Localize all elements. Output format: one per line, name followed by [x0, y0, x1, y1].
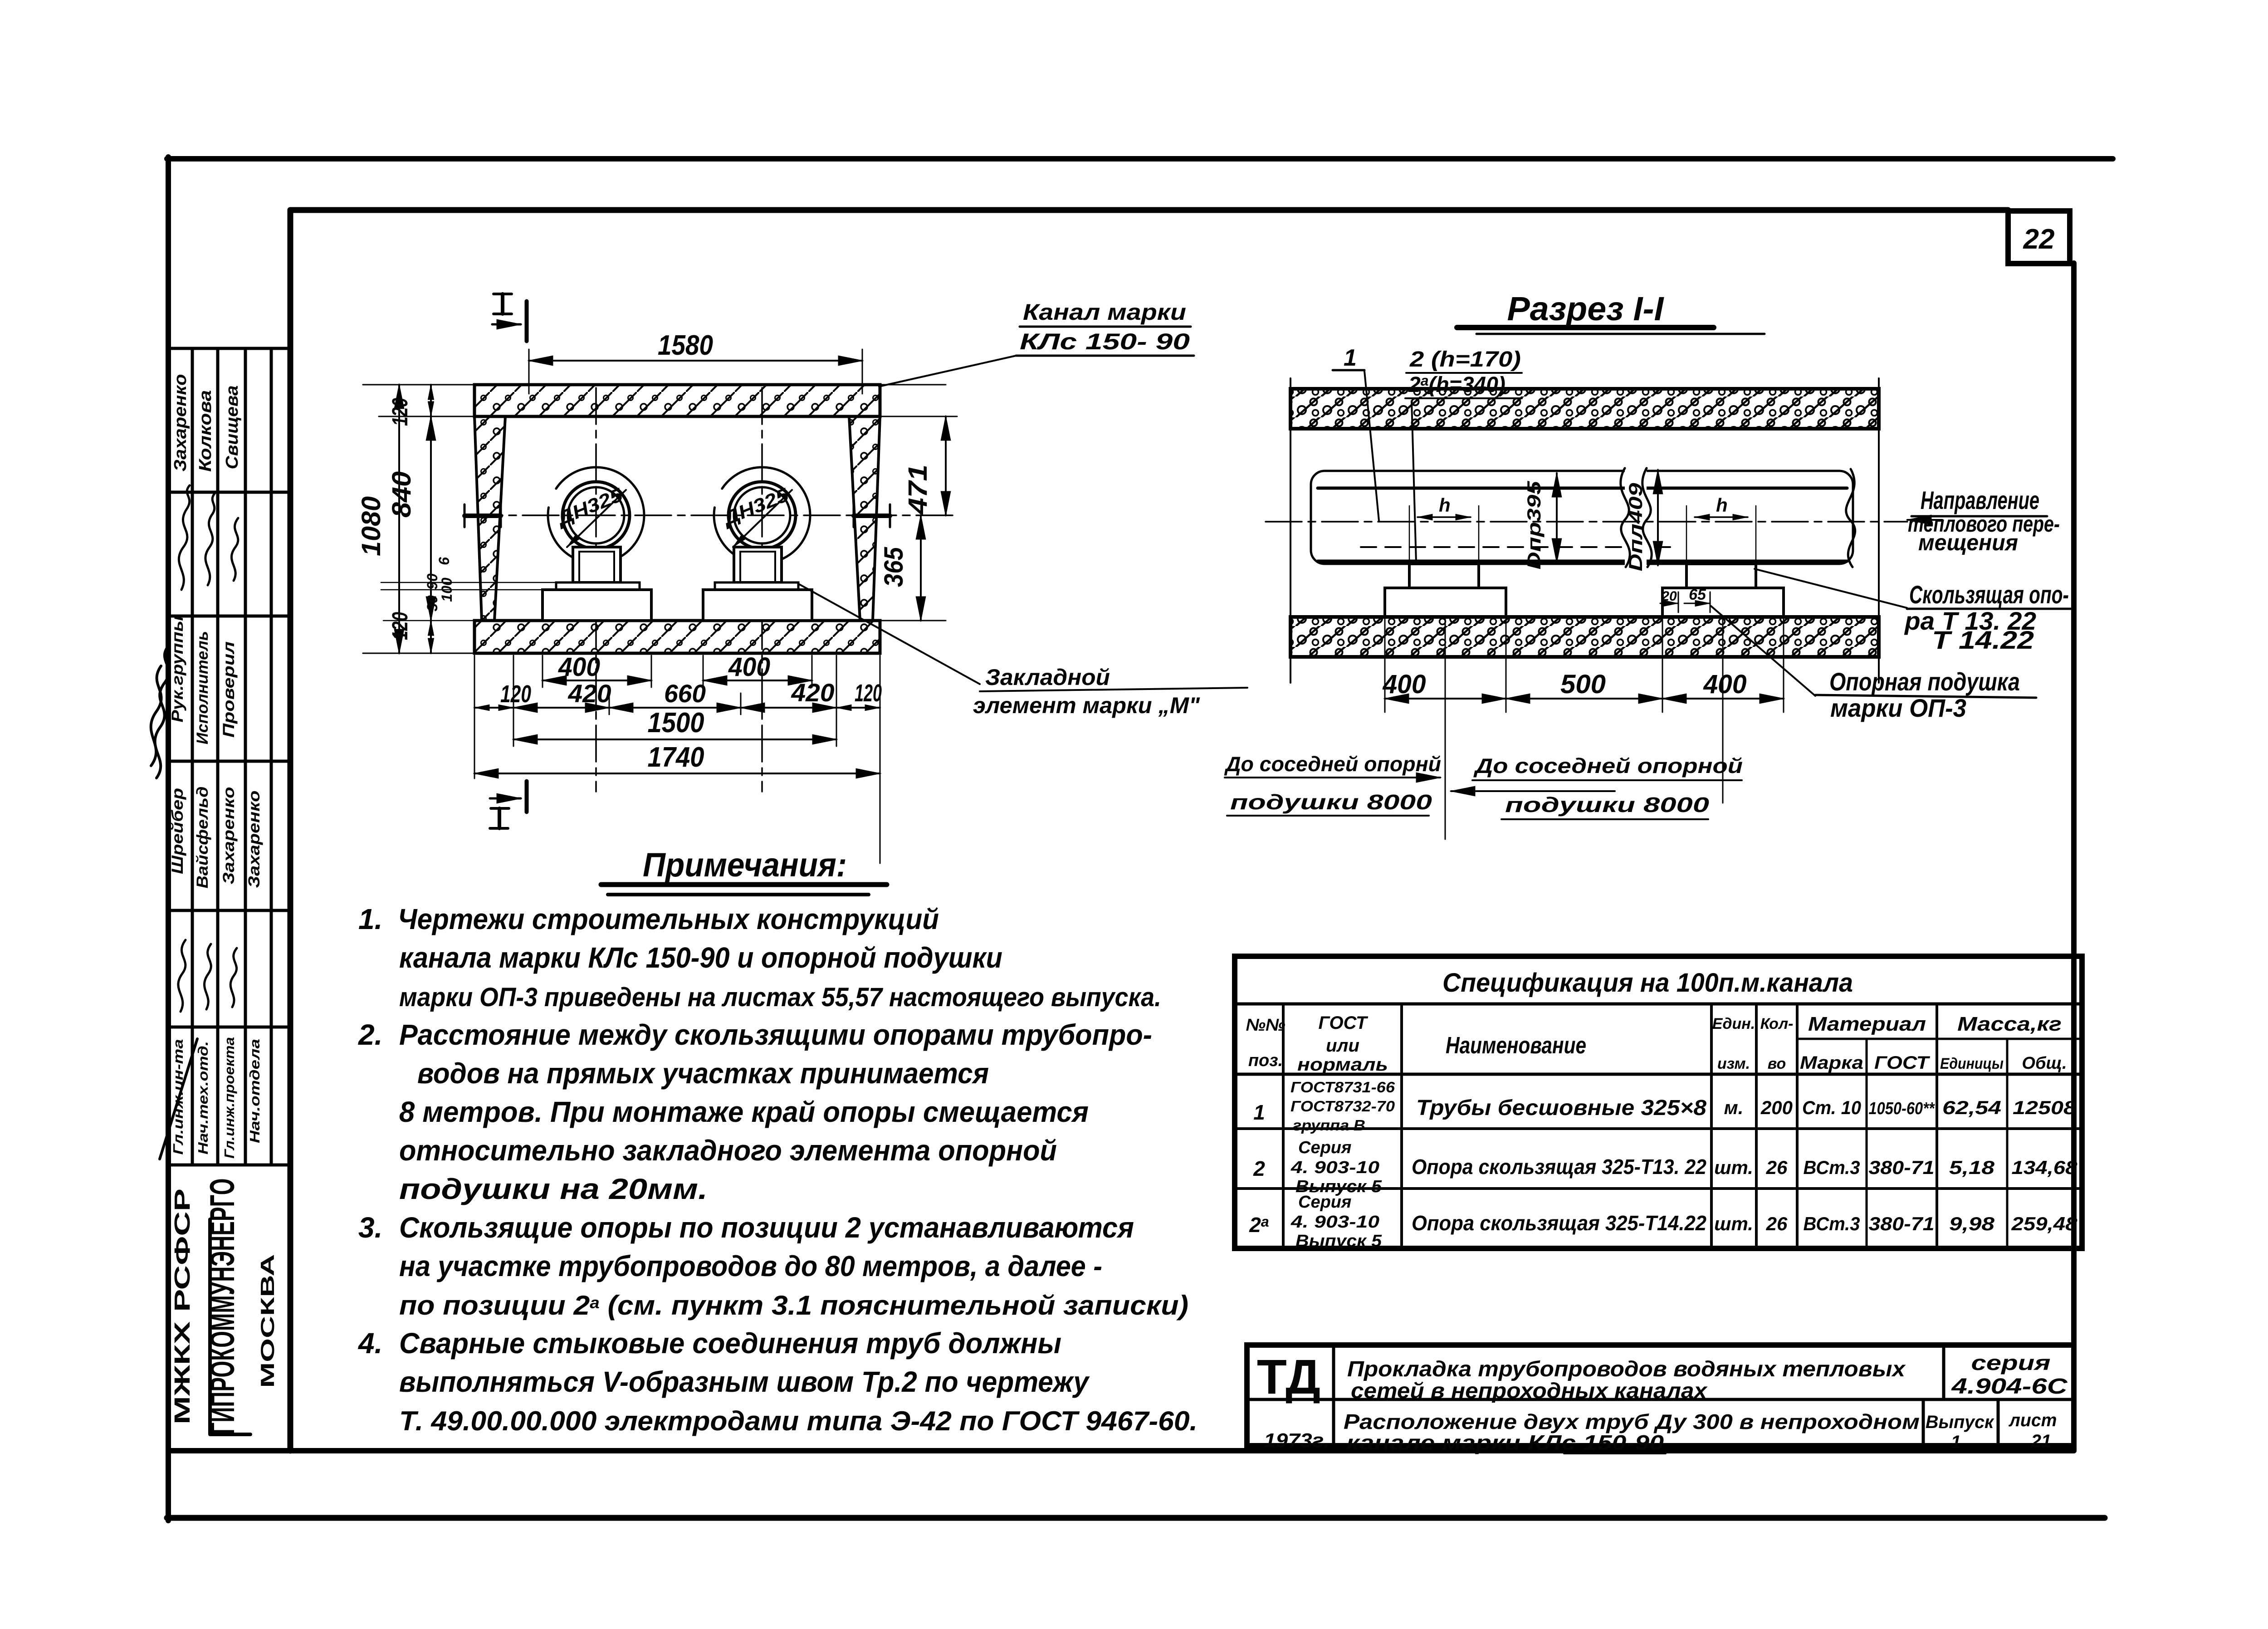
svg-text:изм.: изм. [1717, 1055, 1750, 1072]
svg-text:9,98: 9,98 [1949, 1213, 1995, 1234]
svg-text:380-71: 380-71 [1869, 1157, 1935, 1178]
svg-text:Трубы бесшовные 325×8: Трубы бесшовные 325×8 [1416, 1096, 1706, 1120]
svg-text:1080: 1080 [357, 496, 386, 556]
svg-text:65: 65 [1689, 586, 1706, 603]
svg-text:Закладной: Закладной [985, 665, 1110, 690]
svg-text:1740: 1740 [648, 742, 704, 773]
svg-text:шт.: шт. [1714, 1213, 1753, 1234]
svg-text:ГОСТ: ГОСТ [1319, 1013, 1369, 1033]
svg-text:400: 400 [1703, 670, 1747, 699]
svg-text:365: 365 [879, 547, 909, 587]
svg-text:660: 660 [664, 679, 706, 708]
svg-text:МОСКВА: МОСКВА [257, 1254, 278, 1388]
svg-text:мещения: мещения [1918, 530, 2018, 555]
svg-text:Прокладка трубопроводов водяны: Прокладка трубопроводов водяных тепловых [1347, 1357, 1906, 1381]
svg-text:Вайсфельд: Вайсфельд [194, 787, 211, 889]
svg-text:2а: 2а [1249, 1213, 1269, 1237]
svg-text:840: 840 [387, 471, 416, 518]
svg-text:№№: №№ [1246, 1016, 1285, 1035]
svg-text:подушки 8000: подушки 8000 [1505, 793, 1710, 817]
svg-text:ДН325: ДН325 [719, 484, 792, 529]
svg-text:1580: 1580 [658, 330, 713, 361]
svg-text:Исполнитель: Исполнитель [194, 631, 211, 744]
svg-text:элемент марки „М": элемент марки „М" [973, 693, 1200, 718]
svg-text:h: h [1439, 494, 1451, 516]
svg-text:подушки на 20мм.: подушки на 20мм. [399, 1173, 708, 1205]
svg-text:21: 21 [2031, 1431, 2052, 1451]
svg-text:выполняться V-образным швом: выполняться V-образным швом Тр.2 по черт… [399, 1365, 1090, 1398]
svg-text:Направление: Направление [1921, 486, 2039, 514]
svg-text:или: или [1326, 1036, 1359, 1056]
svg-text:380-71: 380-71 [1869, 1213, 1935, 1234]
svg-text:группа В: группа В [1293, 1117, 1365, 1134]
svg-text:400: 400 [1383, 670, 1426, 699]
svg-text:Т 14.22: Т 14.22 [1932, 626, 2034, 654]
svg-text:h: h [1716, 494, 1728, 516]
svg-text:Разрез I-I: Разрез I-I [1507, 290, 1664, 328]
svg-text:Чертежи строительных констру: Чертежи строительных конструкций [398, 903, 939, 935]
svg-text:Единицы: Единицы [1940, 1055, 2004, 1072]
svg-text:Материал: Материал [1808, 1013, 1926, 1035]
svg-text:420: 420 [791, 678, 834, 707]
svg-text:2.: 2. [358, 1018, 382, 1051]
svg-text:Колкова: Колкова [196, 390, 215, 472]
svg-text:1973г.: 1973г. [1264, 1429, 1330, 1452]
svg-text:259,48: 259,48 [2011, 1213, 2077, 1234]
svg-text:Захаренко: Захаренко [245, 791, 263, 888]
svg-text:4. 903-10: 4. 903-10 [1290, 1213, 1379, 1232]
svg-text:Серия: Серия [1298, 1193, 1351, 1212]
svg-text:Захаренко: Захаренко [171, 374, 190, 472]
svg-text:марки ОП-3: марки ОП-3 [1830, 694, 1966, 722]
svg-text:4.: 4. [357, 1327, 382, 1360]
svg-text:поз.: поз. [1248, 1051, 1283, 1070]
svg-text:КЛс 150- 90: КЛс 150- 90 [1020, 329, 1190, 354]
svg-text:4. 903-10: 4. 903-10 [1290, 1158, 1379, 1177]
svg-text:До соседней опорной: До соседней опорной [1473, 754, 1743, 778]
svg-text:лист: лист [2009, 1410, 2057, 1430]
svg-text:Захаренко: Захаренко [220, 787, 238, 885]
svg-text:200: 200 [1760, 1097, 1793, 1118]
svg-text:Кол-: Кол- [1760, 1015, 1794, 1032]
svg-text:1500: 1500 [648, 707, 704, 739]
svg-text:марки ОП-3 приведены на листах: марки ОП-3 приведены на листах 55,57 нас… [399, 983, 1161, 1012]
svg-text:Гл.инж.проекта: Гл.инж.проекта [221, 1037, 237, 1159]
svg-text:ГОСТ: ГОСТ [1874, 1053, 1931, 1073]
svg-text:ГОСТ8732-70: ГОСТ8732-70 [1290, 1098, 1395, 1115]
svg-text:2: 2 [1253, 1157, 1265, 1180]
svg-text:Расстояние между скользящими: Расстояние между скользящими опорами тру… [399, 1018, 1152, 1051]
svg-text:Скользящая опо-: Скользящая опо- [1909, 580, 2069, 609]
svg-text:сетей в непроходных каналах: сетей в непроходных каналах [1351, 1379, 1708, 1403]
svg-text:подушки 8000: подушки 8000 [1230, 790, 1432, 814]
svg-text:Шрейбер: Шрейбер [169, 788, 186, 874]
svg-text:2 (h=170): 2 (h=170) [1409, 347, 1521, 372]
svg-text:Спецификация на 100п.м.канала: Спецификация на 100п.м.канала [1442, 968, 1853, 998]
svg-text:Опора скользящая 325-Т14.22: Опора скользящая 325-Т14.22 [1412, 1211, 1706, 1235]
svg-text:420: 420 [567, 679, 611, 708]
svg-text:Масса,кг: Масса,кг [1957, 1013, 2062, 1035]
svg-text:на участке трубопроводов до: на участке трубопроводов до 80 метров, а… [399, 1250, 1102, 1282]
svg-text:Нач.тех.отд.: Нач.тех.отд. [195, 1041, 211, 1154]
svg-text:ВСт.3: ВСт.3 [1804, 1213, 1860, 1234]
svg-text:по позиции 2а (см. пункт: по позиции 2а (см. пункт 3.1 пояснительн… [399, 1290, 1188, 1321]
svg-text:1: 1 [1253, 1101, 1265, 1124]
svg-text:ГОСТ8731-66: ГОСТ8731-66 [1290, 1079, 1395, 1096]
svg-text:500: 500 [1560, 670, 1606, 699]
svg-text:Проверил: Проверил [220, 641, 238, 738]
svg-text:ТД: ТД [1257, 1349, 1320, 1404]
svg-text:ДН325: ДН325 [553, 484, 626, 529]
svg-text:22: 22 [2023, 224, 2055, 255]
svg-text:нормаль: нормаль [1297, 1055, 1388, 1075]
svg-text:Т. 49.00.00.000 электродами: Т. 49.00.00.000 электродами типа Э-42 по… [399, 1406, 1198, 1436]
svg-text:Сварные стыковые соединения: Сварные стыковые соединения труб должны [399, 1327, 1061, 1360]
svg-text:471: 471 [903, 465, 933, 515]
svg-text:Примечания:: Примечания: [643, 846, 847, 884]
svg-text:120: 120 [388, 612, 412, 640]
svg-text:400: 400 [728, 652, 770, 682]
svg-text:1: 1 [1344, 345, 1357, 371]
svg-text:90: 90 [424, 573, 440, 590]
svg-text:26: 26 [1766, 1157, 1788, 1178]
svg-text:Марка: Марка [1800, 1053, 1863, 1073]
svg-text:Dпр395: Dпр395 [1523, 481, 1545, 570]
svg-text:До соседней опорнй: До соседней опорнй [1224, 752, 1441, 776]
svg-text:20: 20 [1661, 589, 1677, 604]
svg-text:канала марки КЛс 150-90 и оп: канала марки КЛс 150-90 и опорной подушк… [399, 941, 1002, 974]
svg-text:62,54: 62,54 [1942, 1097, 2001, 1118]
svg-text:134,68: 134,68 [2012, 1157, 2078, 1178]
svg-text:4.904-6С: 4.904-6С [1951, 1375, 2068, 1399]
svg-text:канале марки КЛс 150-90: канале марки КЛс 150-90 [1346, 1431, 1664, 1454]
svg-text:400: 400 [558, 652, 600, 682]
svg-text:Выпуск 5: Выпуск 5 [1295, 1232, 1382, 1251]
svg-text:ВСт.3: ВСт.3 [1804, 1157, 1860, 1178]
svg-text:Общ.: Общ. [2022, 1054, 2067, 1073]
svg-text:1.: 1. [358, 903, 382, 935]
svg-text:3.: 3. [358, 1211, 382, 1244]
svg-text:30: 30 [424, 595, 440, 611]
svg-text:Опора скользящая 325-Т13. 22: Опора скользящая 325-Т13. 22 [1412, 1155, 1706, 1179]
svg-text:Свищева: Свищева [223, 386, 242, 470]
svg-text:водов на прямых участках п: водов на прямых участках принимается [417, 1057, 989, 1090]
svg-text:Dпл409: Dпл409 [1625, 483, 1646, 572]
svg-text:Нач.отдела: Нач.отдела [247, 1039, 263, 1143]
svg-text:шт.: шт. [1714, 1157, 1753, 1178]
svg-text:120: 120 [855, 680, 882, 707]
svg-text:Канал марки: Канал марки [1023, 299, 1186, 325]
svg-text:Ст. 10: Ст. 10 [1802, 1097, 1861, 1118]
svg-text:12508: 12508 [2013, 1097, 2077, 1118]
svg-text:м.: м. [1724, 1097, 1744, 1118]
svg-text:Рук.группы: Рук.группы [169, 616, 186, 722]
svg-text:100: 100 [439, 577, 455, 602]
svg-text:относительно закладного элем: относительно закладного элемента опорной [399, 1134, 1057, 1167]
svg-text:Наименование: Наименование [1446, 1032, 1586, 1059]
svg-text:1: 1 [1951, 1432, 1961, 1452]
svg-text:Скользящие опоры по позиции: Скользящие опоры по позиции 2 устанавлив… [399, 1211, 1134, 1244]
svg-text:6: 6 [436, 557, 452, 565]
svg-text:Серия: Серия [1298, 1138, 1351, 1157]
svg-text:120: 120 [500, 680, 531, 708]
svg-text:1050-60**: 1050-60** [1869, 1099, 1936, 1118]
svg-text:серия: серия [1971, 1351, 2051, 1375]
svg-text:Един.: Един. [1712, 1015, 1755, 1032]
svg-text:5,18: 5,18 [1949, 1157, 1995, 1178]
svg-text:120: 120 [388, 398, 412, 426]
svg-text:8 метров. При монтаже край: 8 метров. При монтаже край опоры смещает… [399, 1096, 1089, 1128]
svg-text:26: 26 [1766, 1213, 1788, 1234]
svg-text:Опорная подушка: Опорная подушка [1829, 667, 2020, 696]
svg-text:Выпуск: Выпуск [1926, 1412, 1994, 1432]
svg-text:МЖКХ РСФСР: МЖКХ РСФСР [171, 1189, 195, 1424]
svg-text:Расположение двух труб Ду 300: Расположение двух труб Ду 300 в непроход… [1344, 1410, 1920, 1433]
svg-text:во: во [1768, 1055, 1786, 1072]
